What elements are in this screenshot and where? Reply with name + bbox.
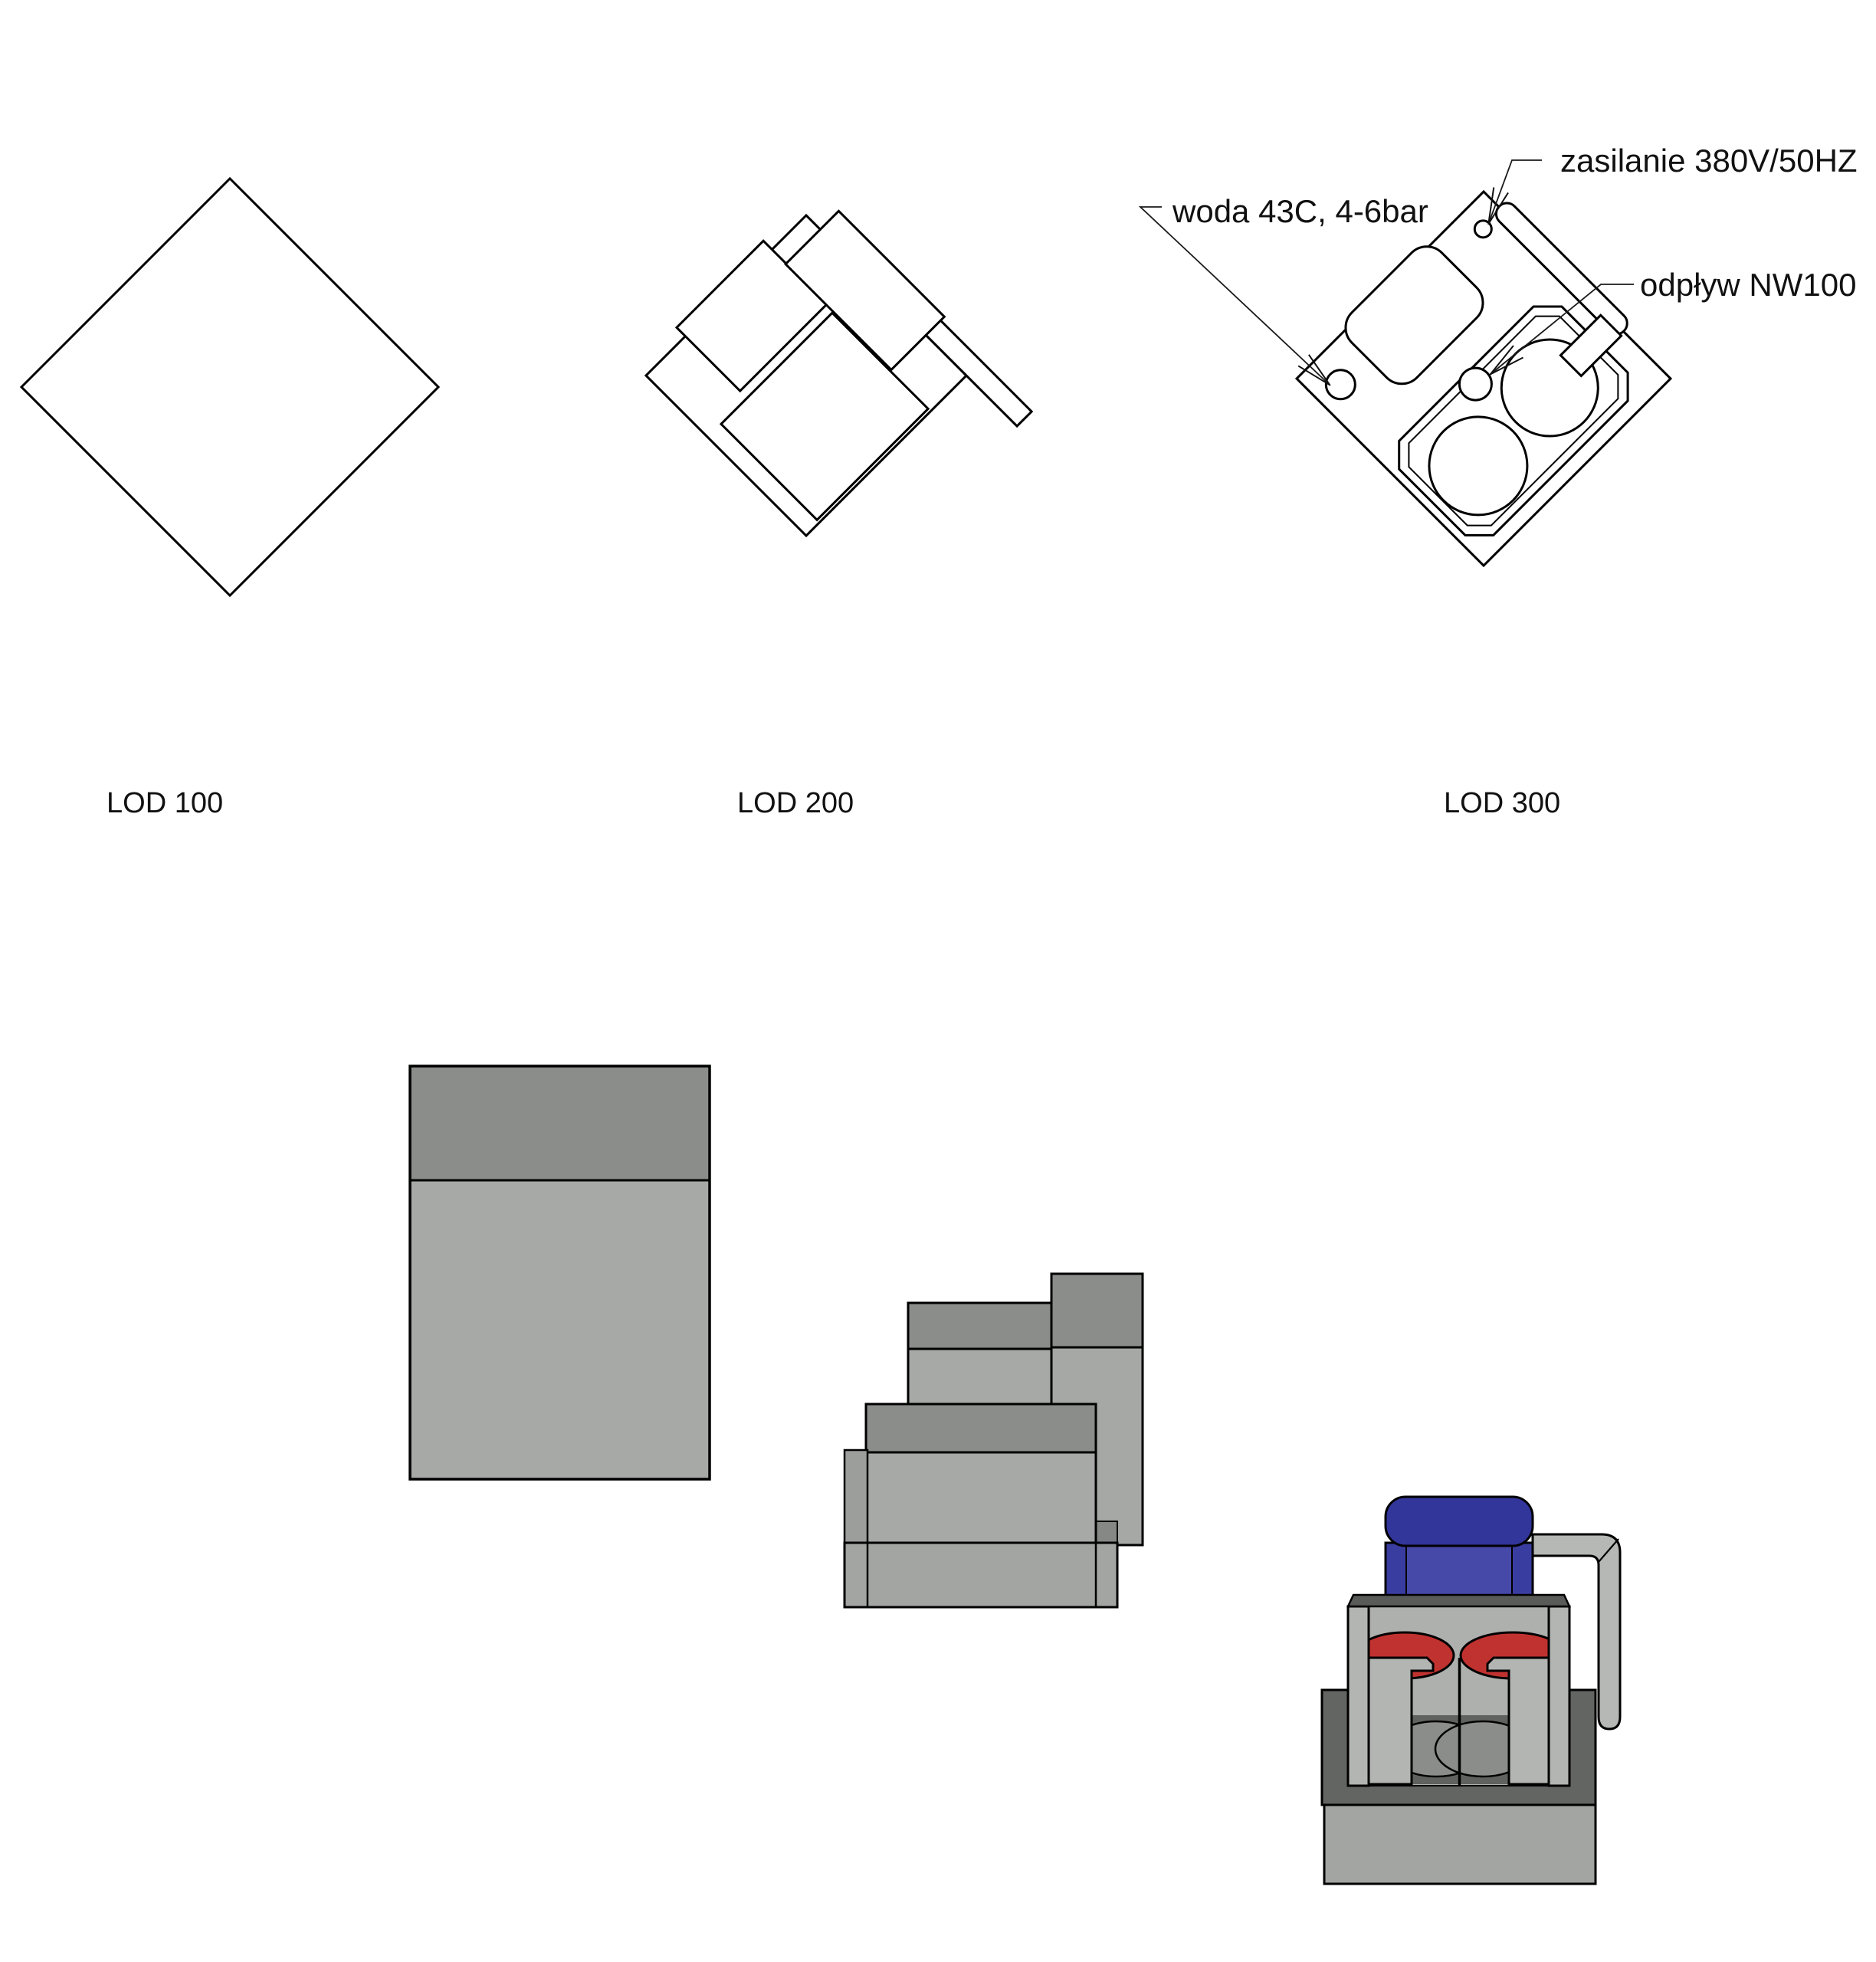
drain-annotation: odpływ NW100 bbox=[1640, 267, 1856, 303]
lod300-plan bbox=[1291, 178, 1679, 566]
lod300-plinth bbox=[1324, 1805, 1596, 1884]
lod200-dark-step bbox=[1096, 1521, 1117, 1543]
lod200-box-upper bbox=[908, 1303, 1051, 1414]
power-annotation: zasilanie 380V/50HZ bbox=[1560, 143, 1858, 179]
water-annotation: woda 43C, 4-6bar bbox=[1172, 193, 1428, 229]
lod100-box-body bbox=[410, 1180, 710, 1479]
lod100-plan bbox=[21, 179, 438, 595]
lod200-box-main bbox=[866, 1404, 1096, 1543]
water-leader-line bbox=[1140, 207, 1330, 386]
lod200-box-left-sliver bbox=[845, 1450, 867, 1543]
lod100-plate-outline bbox=[21, 179, 438, 595]
lod300-3d bbox=[1322, 1497, 1620, 1884]
lod200-plinth bbox=[845, 1543, 1117, 1607]
lod200-3d bbox=[845, 1274, 1143, 1607]
lod200-label: LOD 200 bbox=[737, 787, 854, 819]
drawing-canvas: woda 43C, 4-6bar zasilanie 380V/50HZ odp… bbox=[0, 0, 1876, 1962]
lod100-box-top-band bbox=[410, 1066, 710, 1180]
tub-wall-left bbox=[1348, 1606, 1369, 1786]
lod100-label: LOD 100 bbox=[107, 787, 223, 819]
lod200-plan bbox=[638, 189, 1035, 586]
lod300-hood-blue bbox=[1386, 1497, 1533, 1596]
lod100-3d bbox=[410, 1066, 710, 1479]
lod300-label: LOD 300 bbox=[1444, 787, 1560, 819]
tub-wall-right bbox=[1549, 1606, 1569, 1786]
tub-rim bbox=[1348, 1595, 1569, 1606]
